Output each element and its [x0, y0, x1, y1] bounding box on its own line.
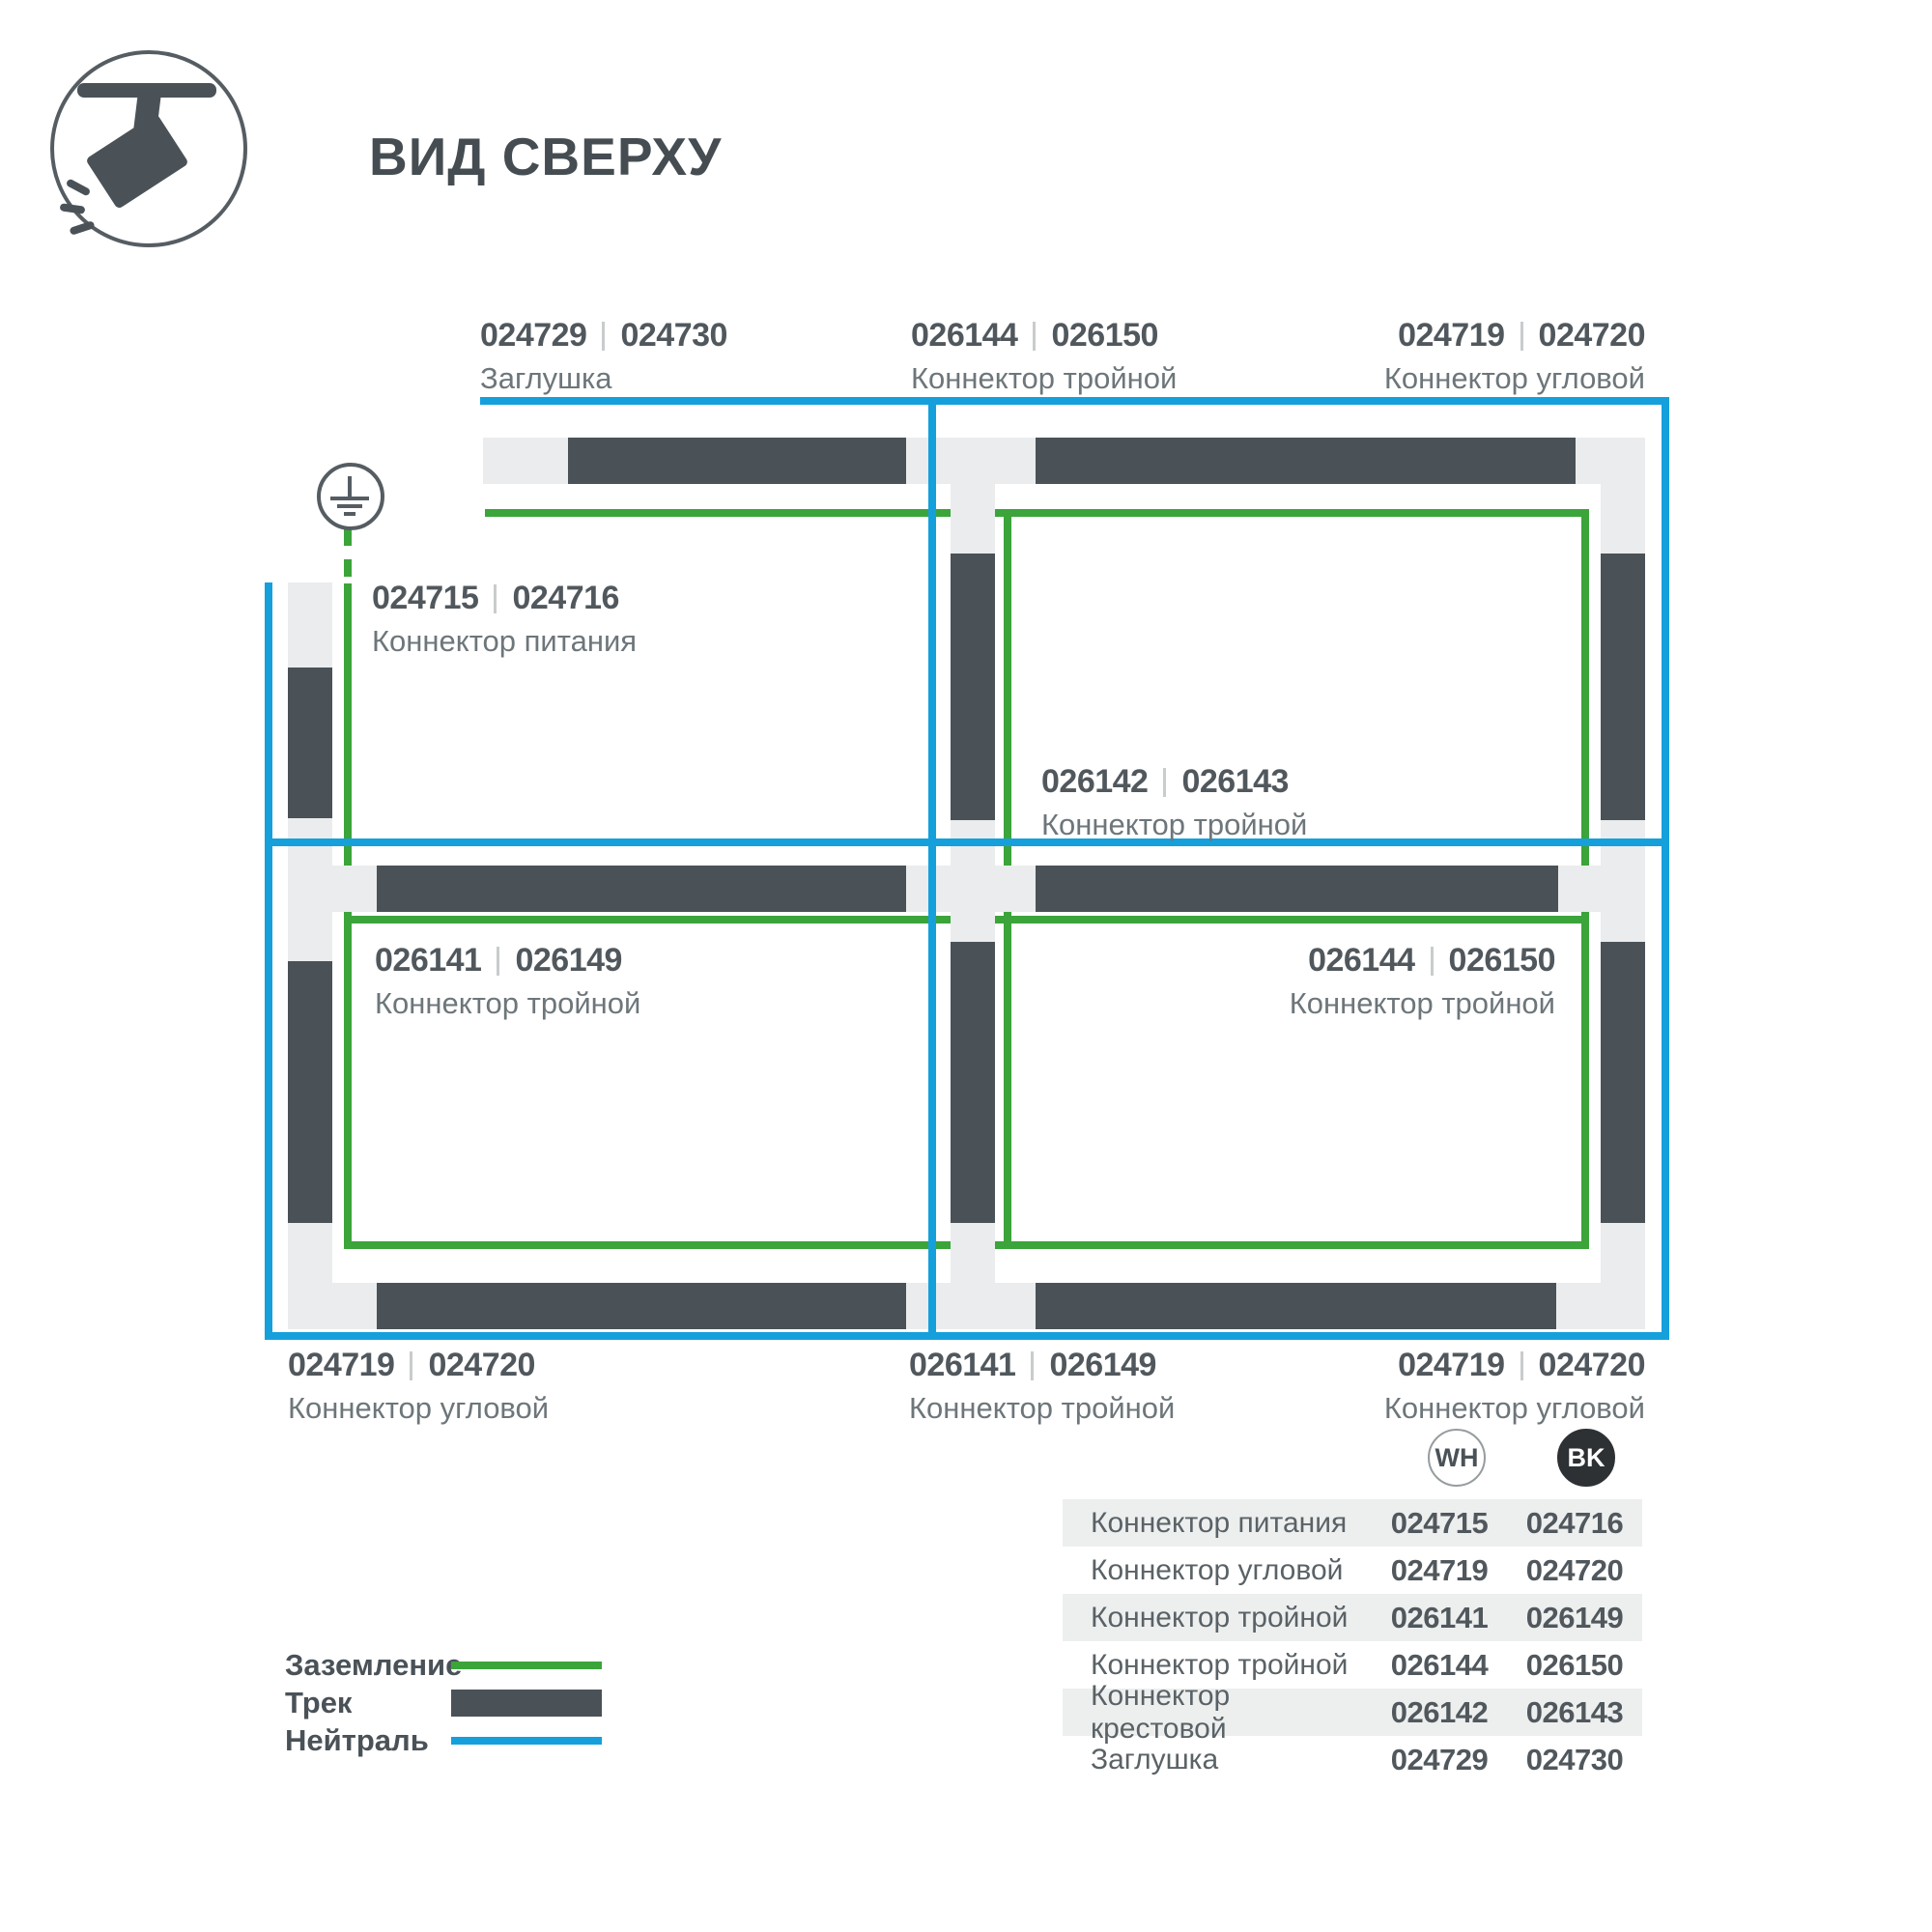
black-variant-badge: BK: [1557, 1429, 1615, 1487]
part-name: Коннектор угловой: [288, 1391, 549, 1426]
white-variant-badge: WH: [1428, 1429, 1486, 1487]
part-number-wh: 024715: [372, 580, 478, 617]
track-segment: [1036, 438, 1576, 484]
part-label-power: 024715024716 Коннектор питания: [372, 580, 637, 659]
earth-ground-icon: [317, 463, 384, 530]
part-name-cell: Коннектор тройной: [1063, 1602, 1372, 1634]
light-ray-icon: [60, 203, 86, 214]
part-name-cell: Коннектор крестовой: [1063, 1680, 1372, 1746]
track-segment: [1601, 554, 1645, 820]
table-row: Коннектор тройной 026141 026149: [1063, 1594, 1642, 1641]
part-label-tee-bottom: 026141026149 Коннектор тройной: [909, 1347, 1175, 1426]
part-label-tee-top: 026144026150 Коннектор тройной: [911, 317, 1177, 396]
part-label-corner-top: 024719024720 Коннектор угловой: [1384, 317, 1645, 396]
neutral-line-bottom: [265, 1332, 1669, 1340]
neutral-line-right: [1662, 397, 1669, 1340]
part-name: Коннектор тройной: [1290, 986, 1555, 1021]
tee-connector-block: [1558, 866, 1645, 912]
part-number-wh: 026141: [909, 1347, 1015, 1384]
corner-connector-block: [1576, 438, 1645, 484]
divider: [1431, 947, 1434, 976]
legend-item-ground: Заземление: [285, 1646, 602, 1685]
part-number-wh: 024719: [1398, 1347, 1504, 1384]
tee-connector-block: [951, 484, 995, 554]
part-number-wh: 026141: [375, 942, 481, 980]
divider: [1163, 768, 1166, 797]
part-name: Заглушка: [480, 361, 727, 396]
part-number-bk: 026150: [1449, 942, 1555, 980]
legend-label: Трек: [285, 1686, 451, 1720]
part-number-bk: 024730: [620, 317, 726, 355]
tee-connector-block: [288, 866, 377, 912]
power-connector-block: [288, 582, 332, 668]
part-name-cell: Коннектор тройной: [1063, 1649, 1372, 1682]
part-label-corner-bottom-left: 024719024720 Коннектор угловой: [288, 1347, 549, 1426]
track-light-icon: [50, 50, 247, 247]
part-name: Коннектор питания: [372, 624, 637, 659]
bk-number-cell: 026149: [1507, 1601, 1642, 1635]
part-name: Коннектор угловой: [1384, 361, 1645, 396]
track-segment: [377, 1283, 906, 1329]
bk-number-cell: 024720: [1507, 1553, 1642, 1588]
cross-connector-block: [906, 866, 1036, 912]
part-number-wh: 026142: [1041, 763, 1148, 801]
legend-item-neutral: Нейтраль: [285, 1721, 602, 1760]
track-segment: [951, 554, 995, 820]
wh-number-cell: 024719: [1372, 1553, 1507, 1588]
corner-connector-block: [1556, 1283, 1645, 1329]
track-segment: [1036, 866, 1558, 912]
tee-connector-block: [951, 1223, 995, 1283]
corner-connector-block: [1601, 484, 1645, 554]
track-segment: [951, 942, 995, 1223]
tee-connector-block: [906, 1283, 1036, 1329]
lamp-head-glyph: [85, 113, 189, 210]
track-swatch: [451, 1690, 602, 1717]
neutral-line-swatch: [451, 1737, 602, 1745]
part-number-wh: 024729: [480, 317, 586, 355]
divider: [1031, 1351, 1034, 1380]
table-row: Коннектор угловой 024719 024720: [1063, 1547, 1642, 1594]
ground-line-top: [485, 509, 1589, 517]
bk-number-cell: 026143: [1507, 1695, 1642, 1730]
page-title: ВИД СВЕРХУ: [369, 126, 722, 187]
part-number-bk: 026149: [515, 942, 621, 980]
divider: [497, 947, 499, 976]
bk-number-cell: 024716: [1507, 1506, 1642, 1541]
table-row: Коннектор питания 024715 024716: [1063, 1499, 1642, 1547]
part-label-tee-cell-left: 026141026149 Коннектор тройной: [375, 942, 640, 1021]
part-number-wh: 026144: [1308, 942, 1414, 980]
part-number-bk: 026149: [1049, 1347, 1155, 1384]
tee-connector-block: [906, 438, 1036, 484]
divider: [1033, 322, 1036, 351]
top-view-schematic-page: ВИД СВЕРХУ 024: [0, 0, 1932, 1932]
light-ray-icon: [69, 220, 95, 236]
ground-line-left: [344, 583, 352, 1249]
part-number-bk: 024720: [428, 1347, 534, 1384]
part-number-bk: 026150: [1051, 317, 1157, 355]
ground-dashed-lead: [344, 528, 352, 583]
part-number-wh: 026144: [911, 317, 1017, 355]
neutral-line-middle: [265, 838, 1669, 846]
part-label-tee-cell-right: 026144026150 Коннектор тройной: [1290, 942, 1555, 1021]
divider: [602, 322, 605, 351]
wh-number-cell: 026142: [1372, 1695, 1507, 1730]
track-segment: [377, 866, 906, 912]
divider: [410, 1351, 412, 1380]
legend-label: Заземление: [285, 1648, 451, 1683]
divider: [494, 584, 497, 613]
track-segment: [288, 961, 332, 1223]
part-name: Коннектор тройной: [911, 361, 1177, 396]
ground-line-swatch: [451, 1662, 602, 1669]
part-name: Коннектор тройной: [375, 986, 640, 1021]
part-label-corner-bottom-right: 024719024720 Коннектор угловой: [1384, 1347, 1645, 1426]
part-number-bk: 026143: [1181, 763, 1288, 801]
parts-table: Коннектор питания 024715 024716 Коннекто…: [1063, 1499, 1642, 1783]
divider: [1520, 322, 1523, 351]
wh-number-cell: 024729: [1372, 1743, 1507, 1777]
track-segment: [1601, 942, 1645, 1223]
part-name: Коннектор тройной: [909, 1391, 1175, 1426]
neutral-line-top: [480, 397, 1669, 405]
track-segment: [568, 438, 906, 484]
part-label-cross: 026142026143 Коннектор тройной: [1041, 763, 1307, 842]
wh-number-cell: 024715: [1372, 1506, 1507, 1541]
corner-connector-block: [288, 1283, 377, 1329]
wh-number-cell: 026141: [1372, 1601, 1507, 1635]
track-segment: [288, 668, 332, 818]
part-label-endcap: 024729024730 Заглушка: [480, 317, 727, 396]
legend-label: Нейтраль: [285, 1723, 451, 1758]
part-number-wh: 024719: [1398, 317, 1504, 355]
part-name: Коннектор угловой: [1384, 1391, 1645, 1426]
wh-number-cell: 026144: [1372, 1648, 1507, 1683]
part-number-bk: 024716: [512, 580, 618, 617]
part-number-wh: 024719: [288, 1347, 394, 1384]
part-name-cell: Коннектор питания: [1063, 1507, 1372, 1540]
part-name: Коннектор тройной: [1041, 808, 1307, 842]
part-name-cell: Заглушка: [1063, 1744, 1372, 1776]
bk-number-cell: 026150: [1507, 1648, 1642, 1683]
table-row: Коннектор крестовой 026142 026143: [1063, 1689, 1642, 1736]
endcap-connector-block: [483, 438, 568, 484]
neutral-line-left: [265, 582, 272, 1340]
track-segment: [1036, 1283, 1556, 1329]
table-row: Заглушка 024729 024730: [1063, 1736, 1642, 1783]
part-number-bk: 024720: [1539, 317, 1645, 355]
legend-item-track: Трек: [285, 1684, 602, 1722]
neutral-line-center: [928, 397, 936, 1340]
light-ray-icon: [66, 178, 92, 196]
bk-number-cell: 024730: [1507, 1743, 1642, 1777]
part-name-cell: Коннектор угловой: [1063, 1554, 1372, 1587]
divider: [1520, 1351, 1523, 1380]
part-number-bk: 024720: [1539, 1347, 1645, 1384]
